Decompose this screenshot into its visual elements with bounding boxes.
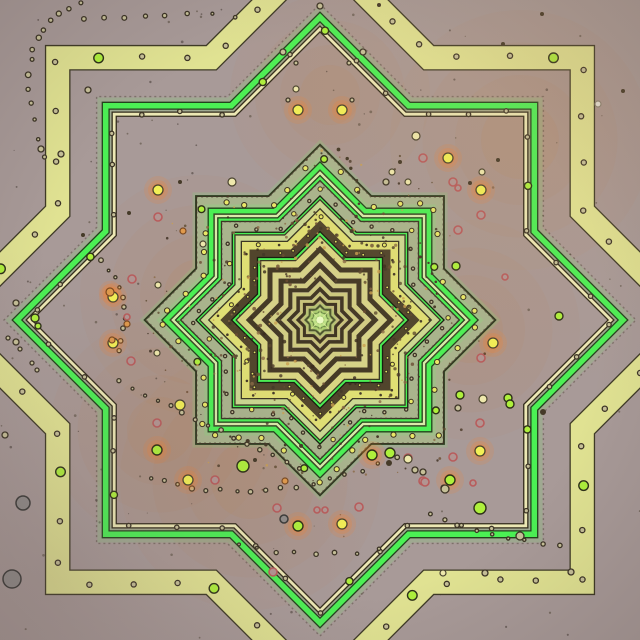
artwork-canvas	[0, 0, 640, 640]
fractal-star-mandala	[0, 0, 640, 640]
center-glow	[304, 304, 336, 336]
